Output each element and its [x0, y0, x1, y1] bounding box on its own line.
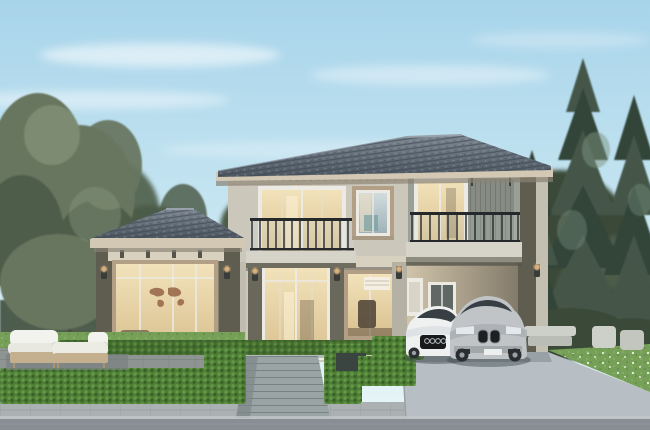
center-balcony: [246, 186, 356, 268]
wall-sconce: [534, 264, 540, 277]
road: [0, 416, 650, 430]
wall-sconce: [224, 266, 230, 279]
coupe-grille: [420, 335, 446, 349]
house-rendering-scene: [0, 0, 650, 430]
wall-sconce: [101, 266, 107, 279]
office-window: [344, 270, 396, 342]
desk-chair-silhouette: [358, 300, 376, 328]
kidney-grille: [478, 330, 488, 343]
wall-sconce: [334, 268, 340, 281]
wall-sconce: [396, 266, 402, 279]
wall-sconce: [252, 268, 258, 281]
kidney-grille: [490, 330, 500, 343]
center-balcony-railing: [250, 218, 354, 251]
upper-window: [352, 186, 394, 240]
garden: [0, 326, 650, 430]
walkway: [236, 348, 332, 418]
license-plate: [484, 349, 502, 355]
right-balcony-railing: [410, 212, 520, 243]
right-balcony: [406, 172, 522, 266]
